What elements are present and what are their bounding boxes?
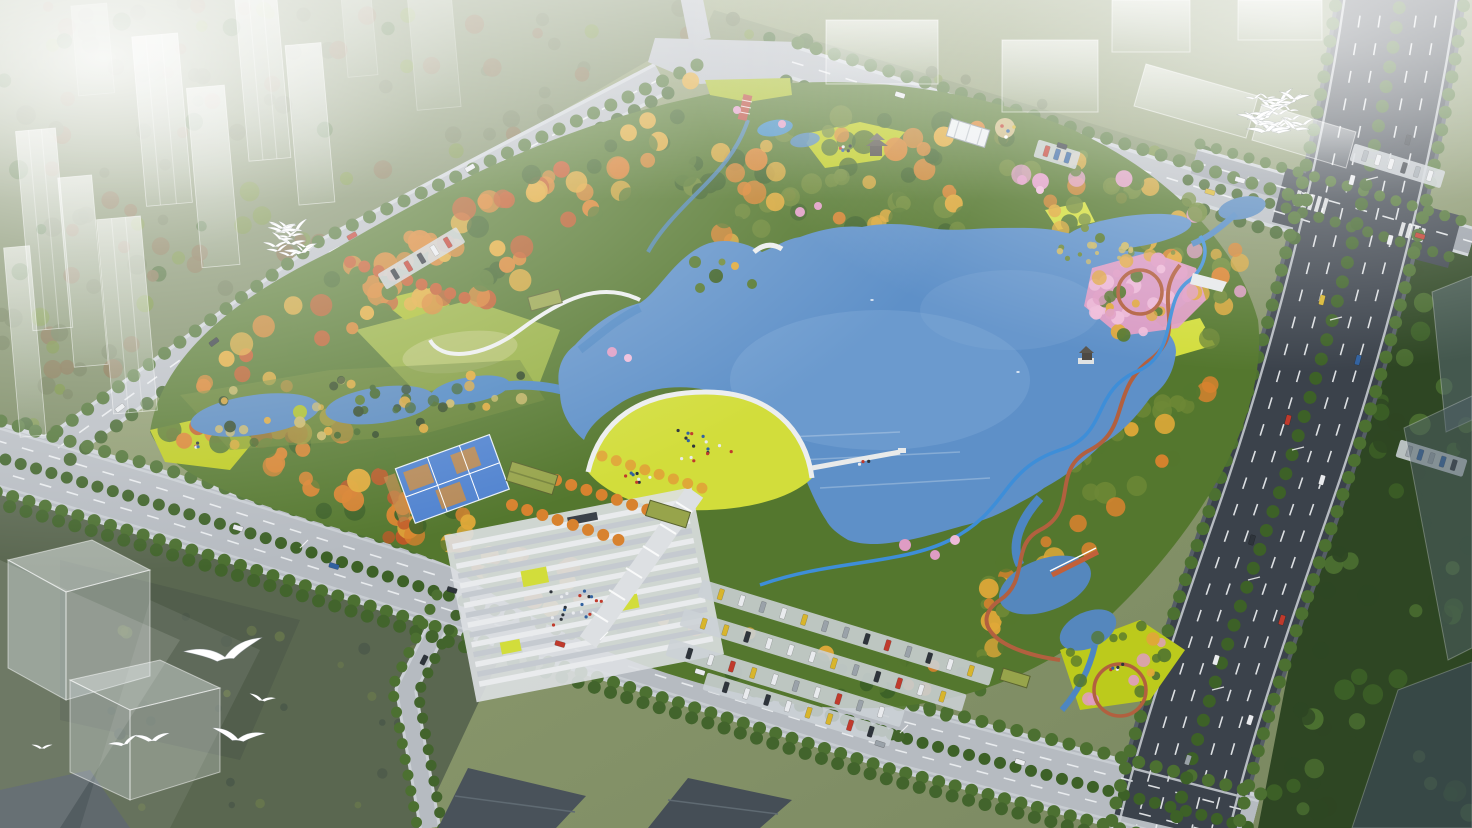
rendering-canvas xyxy=(0,0,1472,828)
haze-topright xyxy=(0,0,1472,828)
aerial-park-screenshot xyxy=(0,0,1472,828)
